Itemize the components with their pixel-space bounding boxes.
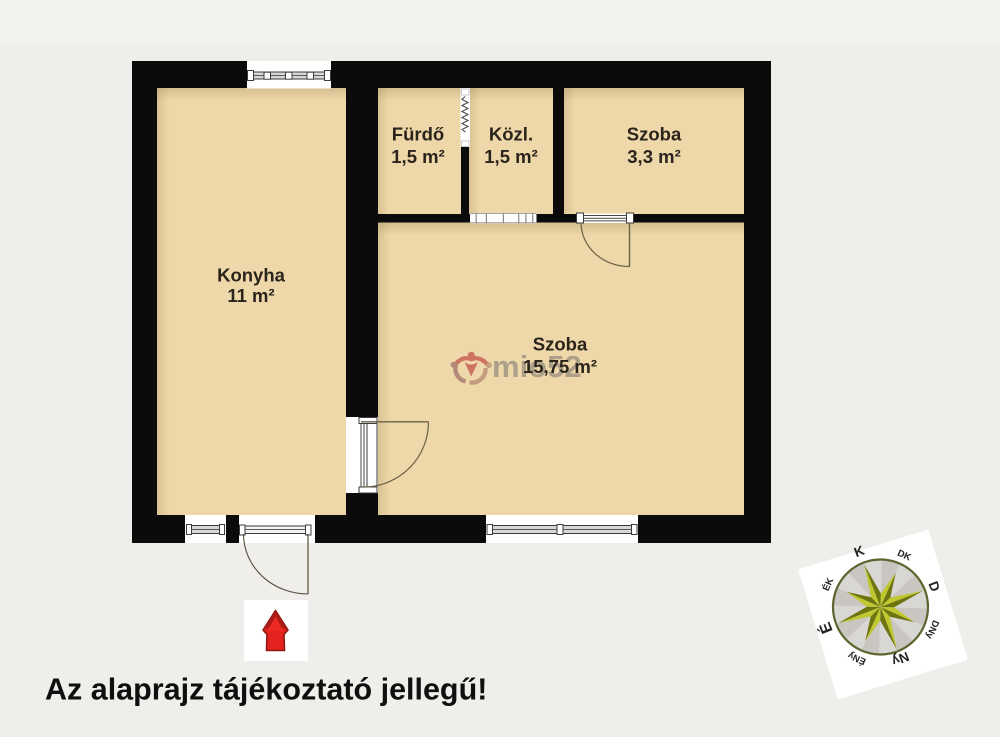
svg-text:Szoba: Szoba	[627, 124, 682, 145]
svg-text:3,3 m²: 3,3 m²	[627, 146, 680, 167]
svg-text:1,5 m²: 1,5 m²	[484, 146, 537, 167]
svg-text:Konyha: Konyha	[217, 265, 286, 286]
svg-text:Közl.: Közl.	[489, 124, 533, 145]
svg-text:15,75 m²: 15,75 m²	[523, 356, 597, 377]
svg-text:11 m²: 11 m²	[227, 285, 274, 306]
svg-text:Szoba: Szoba	[533, 334, 588, 355]
svg-text:Az alaprajz tájékoztató jelleg: Az alaprajz tájékoztató jellegű!	[45, 673, 487, 707]
svg-text:Fürdő: Fürdő	[392, 124, 444, 145]
svg-text:1,5 m²: 1,5 m²	[391, 146, 444, 167]
